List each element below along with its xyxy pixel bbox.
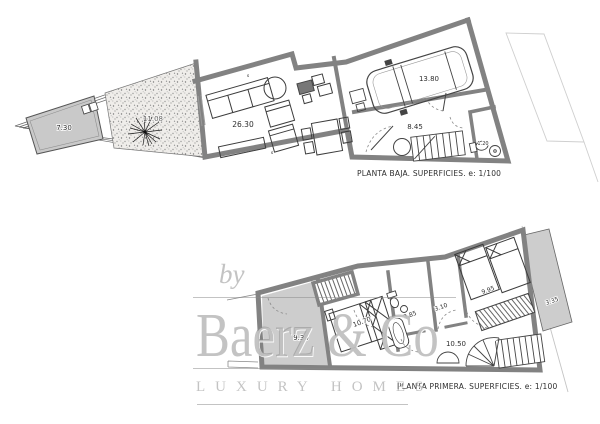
first-floor-caption: PLANTA PRIMERA. SUPERFICIES. e: 1/100 bbox=[397, 382, 557, 391]
staircase-icon bbox=[495, 334, 544, 368]
first-floor-plan: 9.30 10.70 3.85 3.10 9.95 10.50 3.35 PLA… bbox=[227, 226, 572, 392]
room-label-wc: 1.20 bbox=[477, 141, 488, 147]
sink-icon bbox=[401, 306, 408, 313]
floorplan-image: 7.30 11.08 26.30 13.80 8.45 1.20 s s PLA… bbox=[0, 0, 600, 424]
stair-column-icon bbox=[394, 139, 411, 156]
roof-edge-lines bbox=[227, 294, 258, 368]
ground-floor-caption: PLANTA BAJA. SUPERFICIES. e: 1/100 bbox=[357, 169, 501, 178]
room-label-garage: 13.80 bbox=[419, 75, 439, 83]
room-label-garden-terrace: 11.08 bbox=[143, 115, 163, 123]
plot-boundary-lines bbox=[506, 33, 598, 182]
sink-icon bbox=[490, 146, 501, 157]
room-label-hall: 8.45 bbox=[407, 123, 423, 131]
room-label-pool: 7.30 bbox=[56, 124, 72, 132]
room-label-living: 26.30 bbox=[232, 120, 254, 129]
garden-terrace bbox=[105, 63, 206, 157]
ground-floor-plan: 7.30 11.08 26.30 13.80 8.45 1.20 s s PLA… bbox=[15, 20, 598, 182]
section-mark: s bbox=[271, 151, 274, 156]
floorplan-drawing: 7.30 11.08 26.30 13.80 8.45 1.20 s s PLA… bbox=[0, 0, 600, 424]
room-label-terrace: 9.30 bbox=[293, 334, 309, 342]
room-label-landing: 10.50 bbox=[446, 340, 466, 348]
